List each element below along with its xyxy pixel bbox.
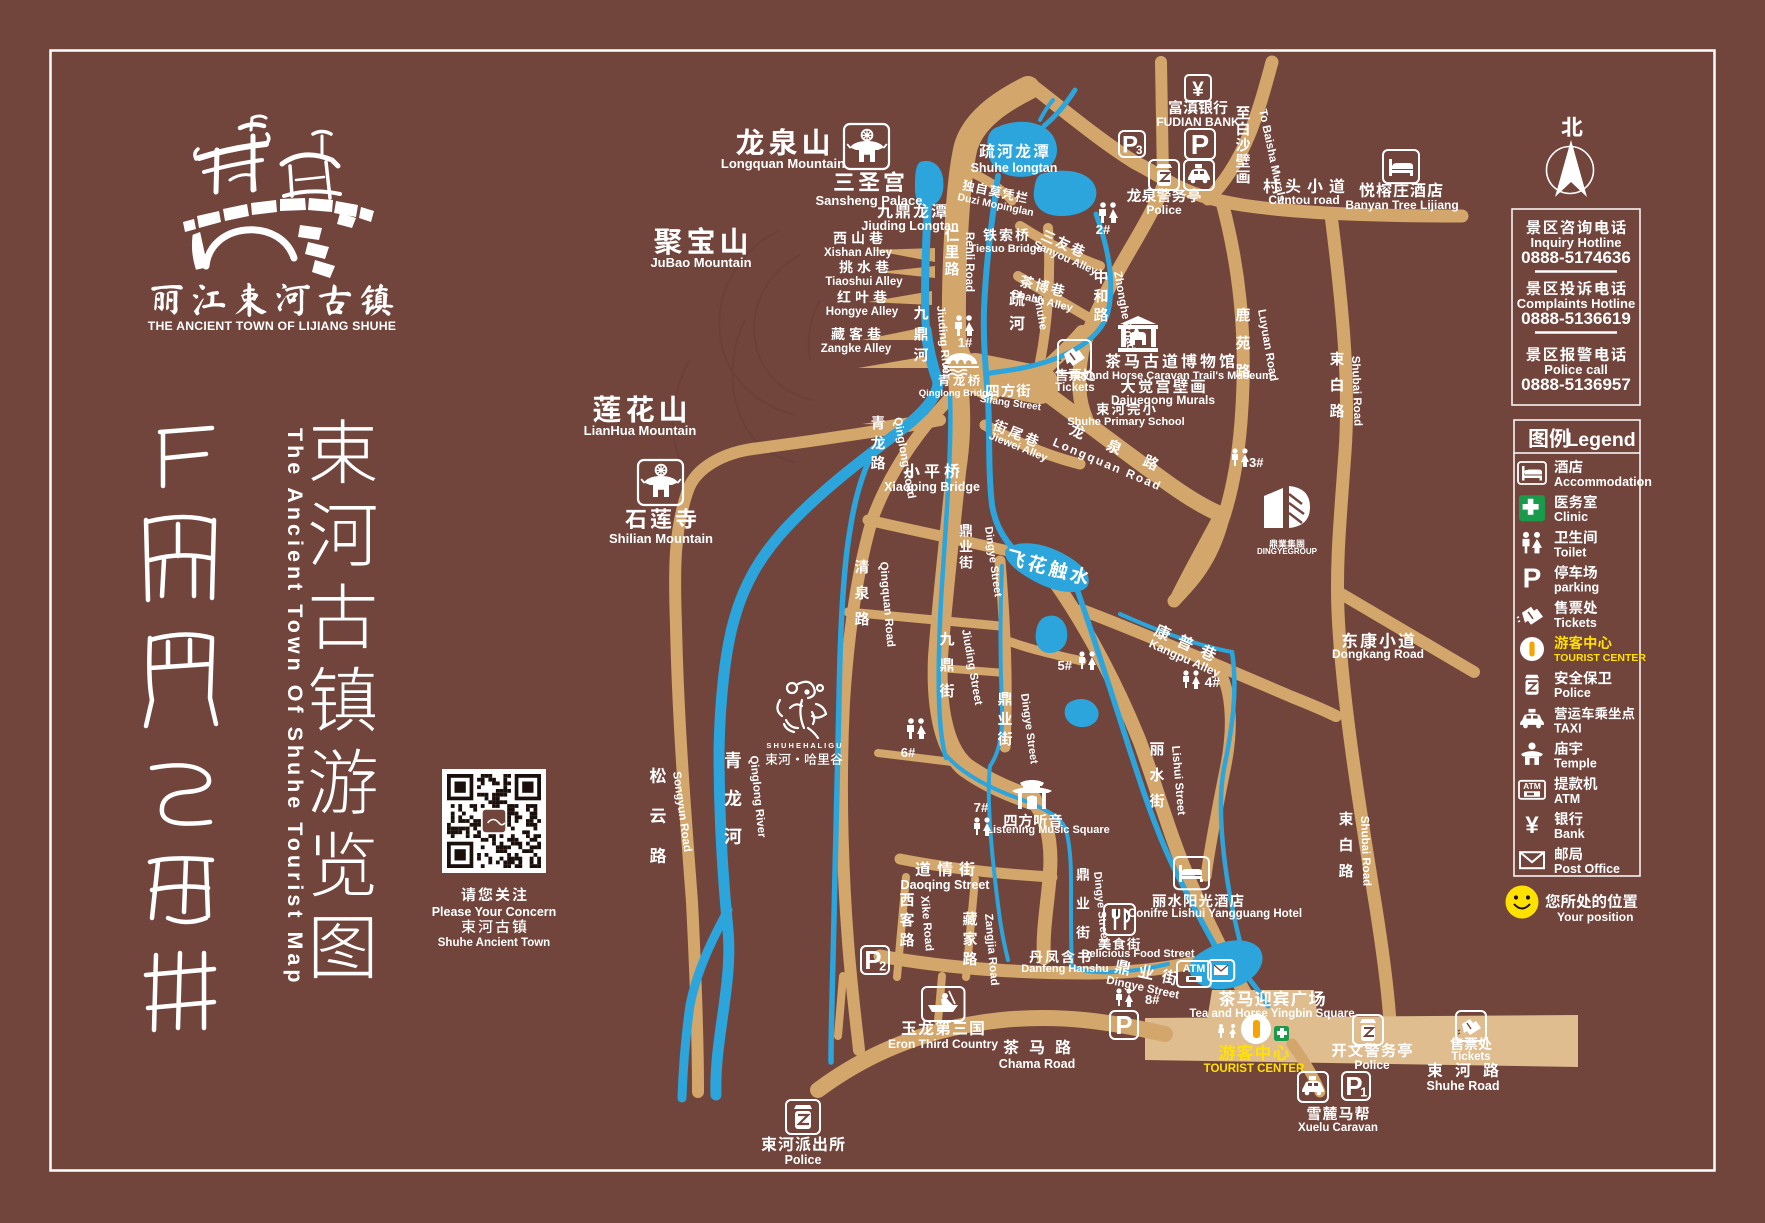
svg-text:Shuhe Ancient Town: Shuhe Ancient Town [438, 937, 550, 949]
svg-text:Police: Police [1554, 686, 1591, 700]
svg-text:Shuhe Road: Shuhe Road [1427, 1079, 1500, 1093]
svg-text:S H U H E H A L I G U: S H U H E H A L I G U [766, 741, 841, 750]
svg-text:Dongkang Road: Dongkang Road [1332, 647, 1424, 661]
svg-text:Post Office: Post Office [1554, 862, 1620, 876]
svg-text:ATM: ATM [1183, 963, 1206, 975]
svg-text:ATM: ATM [1554, 792, 1580, 806]
svg-text:1: 1 [1360, 1086, 1367, 1100]
svg-text:Shubai Road: Shubai Road [1349, 356, 1363, 427]
svg-text:Xiaoping Bridge: Xiaoping Bridge [884, 480, 980, 494]
svg-text:The Ancient Town Of Shuhe: The Ancient Town Of Shuhe Tourist Map [283, 428, 307, 986]
svg-text:P: P [1191, 129, 1209, 160]
svg-text:2: 2 [879, 960, 886, 974]
svg-text:Please Your Concern: Please Your Concern [432, 905, 557, 919]
svg-text:Accommodation: Accommodation [1554, 475, 1652, 489]
svg-text:DINGYEGROUP: DINGYEGROUP [1257, 547, 1318, 556]
svg-text:Police: Police [785, 1153, 822, 1167]
svg-text:Tea and Horse Caravan Trail's: Tea and Horse Caravan Trail's Museum [1068, 370, 1272, 382]
svg-text:Tiaoshui Alley: Tiaoshui Alley [825, 276, 903, 288]
svg-text:Tea and Horse Yingbin Square: Tea and Horse Yingbin Square [1189, 1008, 1354, 1020]
svg-text:Temple: Temple [1554, 757, 1597, 771]
svg-text:5#: 5# [1058, 658, 1073, 673]
svg-text:THE ANCIENT TOWN OF LIJIANG SH: THE ANCIENT TOWN OF LIJIANG SHUHE [148, 319, 396, 333]
svg-text:Xuelu Caravan: Xuelu Caravan [1298, 1122, 1378, 1134]
svg-text:Banyan Tree Lijiang: Banyan Tree Lijiang [1345, 198, 1458, 212]
svg-text:Legend: Legend [1566, 429, 1635, 451]
svg-text:Toilet: Toilet [1554, 545, 1587, 559]
svg-text:Daoqing Street: Daoqing Street [901, 878, 991, 892]
svg-text:Clinic: Clinic [1554, 510, 1588, 524]
svg-text:Your position: Your position [1557, 910, 1633, 924]
svg-text:Shuhe longtan: Shuhe longtan [971, 161, 1058, 175]
svg-text:Dajuegong Murals: Dajuegong Murals [1111, 393, 1215, 407]
svg-text:Listening Music Square: Listening Music Square [986, 824, 1109, 836]
svg-text:7#: 7# [974, 800, 989, 815]
svg-text:Shuhe Primary School: Shuhe Primary School [1067, 416, 1184, 428]
svg-text:P: P [1115, 1012, 1132, 1040]
svg-text:Longquan Mountain: Longquan Mountain [721, 156, 845, 171]
svg-text:Renli Road: Renli Road [963, 232, 975, 292]
svg-text:0888-5136957: 0888-5136957 [1521, 375, 1631, 394]
svg-text:JuBao Mountain: JuBao Mountain [650, 255, 751, 270]
svg-text:Tickets: Tickets [1055, 382, 1094, 394]
svg-text:1#: 1# [958, 335, 973, 350]
svg-text:Police: Police [1146, 203, 1182, 217]
svg-text:Danfeng Hanshu: Danfeng Hanshu [1021, 963, 1108, 975]
svg-text:LianHua Mountain: LianHua Mountain [584, 423, 697, 438]
svg-text:Police: Police [1354, 1058, 1390, 1072]
svg-text:Chama Road: Chama Road [999, 1057, 1075, 1071]
svg-text:Jiuding Longtan: Jiuding Longtan [861, 219, 958, 233]
svg-text:Hongye Alley: Hongye Alley [826, 306, 899, 318]
svg-text:Shilian Mountain: Shilian Mountain [609, 531, 713, 546]
svg-text:6#: 6# [901, 745, 916, 760]
svg-text:Eron Third Country: Eron Third Country [888, 1037, 998, 1051]
svg-text:TOURIST CENTER: TOURIST CENTER [1554, 652, 1646, 664]
svg-text:0888-5136619: 0888-5136619 [1521, 309, 1631, 328]
svg-text:Tickets: Tickets [1451, 1051, 1490, 1063]
svg-text:Bank: Bank [1554, 827, 1585, 841]
svg-text:parking: parking [1554, 581, 1599, 595]
svg-text:2#: 2# [1096, 222, 1111, 237]
svg-text:Zangke Alley: Zangke Alley [821, 343, 892, 355]
svg-text:3#: 3# [1249, 455, 1264, 470]
svg-text:Cuntou road: Cuntou road [1268, 193, 1339, 207]
svg-text:TAXI: TAXI [1554, 721, 1582, 735]
svg-text:¥: ¥ [1525, 812, 1539, 839]
svg-text:3: 3 [1136, 144, 1143, 157]
svg-text:0888-5174636: 0888-5174636 [1521, 248, 1631, 267]
svg-text:Qinglong Bridge: Qinglong Bridge [919, 388, 993, 399]
svg-text:Tickets: Tickets [1554, 616, 1597, 630]
svg-text:Xishan Alley: Xishan Alley [824, 247, 893, 259]
svg-text:FUDIAN BANK: FUDIAN BANK [1156, 115, 1240, 129]
svg-text:Conifre Lishui Yangguang Hotel: Conifre Lishui Yangguang Hotel [1128, 908, 1302, 920]
svg-text:¥: ¥ [1192, 78, 1204, 101]
svg-text:ATM: ATM [1523, 781, 1541, 791]
svg-text:Shubai Road: Shubai Road [1358, 816, 1372, 887]
svg-text:P: P [1523, 563, 1542, 594]
svg-text:Delicious Food Street: Delicious Food Street [1081, 948, 1194, 960]
svg-text:TOURIST CENTER: TOURIST CENTER [1204, 1063, 1305, 1075]
